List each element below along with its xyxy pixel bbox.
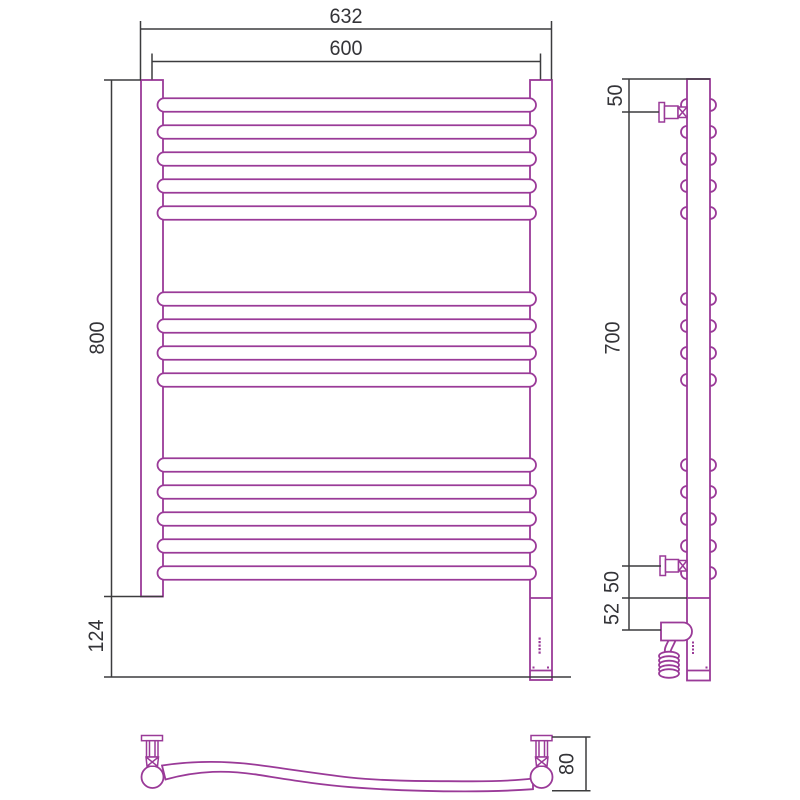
top-wall-bracket-right: [531, 736, 552, 767]
towel-bar: [158, 319, 537, 333]
side-dimension-labels: 50 700 50 52: [601, 85, 628, 626]
cable-coil: [659, 652, 679, 678]
led-dot: [539, 638, 541, 640]
bracket-stem: [665, 106, 679, 119]
dim-label-bracket-to-tube-end: 50: [601, 571, 624, 593]
dim-label-rail-span: 600: [330, 37, 363, 60]
towel-bar: [158, 206, 537, 220]
dim-label-bracket-span: 700: [602, 322, 625, 355]
towel-bar: [158, 179, 537, 193]
element-cable: [665, 641, 676, 652]
towel-bar: [158, 373, 537, 387]
led-dot: [547, 667, 549, 669]
led-dot: [692, 652, 694, 654]
side-view: [659, 79, 716, 681]
led-dot: [706, 667, 708, 669]
dim-label-bottom-unit: 124: [85, 619, 108, 652]
dim-label-top-to-bracket: 50: [604, 85, 627, 107]
bracket-stem: [536, 741, 548, 757]
led-dot: [539, 645, 541, 647]
top-view: [142, 736, 553, 792]
front-towel-bars: [158, 98, 537, 580]
bracket-flange: [659, 103, 665, 123]
led-dot: [539, 641, 541, 643]
dim-label-height: 800: [86, 322, 109, 355]
led-dot: [692, 649, 694, 651]
towel-bar: [158, 98, 537, 112]
towel-rail-drawing: 632 600 800 124 50 700 50 52 80: [0, 0, 800, 800]
led-dot: [533, 667, 535, 669]
dim-label-depth: 80: [556, 753, 579, 775]
towel-bar: [158, 125, 537, 139]
towel-bar: [158, 346, 537, 360]
towel-bar: [158, 458, 537, 472]
towel-bar: [158, 152, 537, 166]
towel-bar: [158, 485, 537, 499]
led-dot: [539, 652, 541, 654]
bracket-stem: [666, 560, 679, 573]
bracket-flange: [531, 736, 552, 741]
bracket-flange: [142, 736, 163, 741]
towel-bar: [158, 539, 537, 553]
side-tube: [687, 79, 710, 681]
top-right-rail-section: [531, 766, 553, 788]
heating-element-side: [661, 623, 692, 641]
towel-bar: [158, 512, 537, 526]
top-wavy-bar: [162, 762, 533, 792]
towel-bar: [158, 292, 537, 306]
technical-drawing-canvas: 632 600 800 124 50 700 50 52 80: [0, 0, 800, 800]
dim-label-overall-width: 632: [330, 5, 363, 28]
led-dot: [692, 642, 694, 644]
towel-bar: [158, 566, 537, 580]
top-dimension-labels: 80: [556, 753, 579, 775]
top-wall-bracket-left: [142, 736, 163, 767]
bracket-stem: [147, 741, 159, 757]
led-dot: [539, 648, 541, 650]
dim-label-tube-end-to-element: 52: [601, 603, 624, 625]
front-view: [141, 80, 552, 680]
top-left-rail-section: [142, 766, 164, 788]
led-dot: [692, 645, 694, 647]
